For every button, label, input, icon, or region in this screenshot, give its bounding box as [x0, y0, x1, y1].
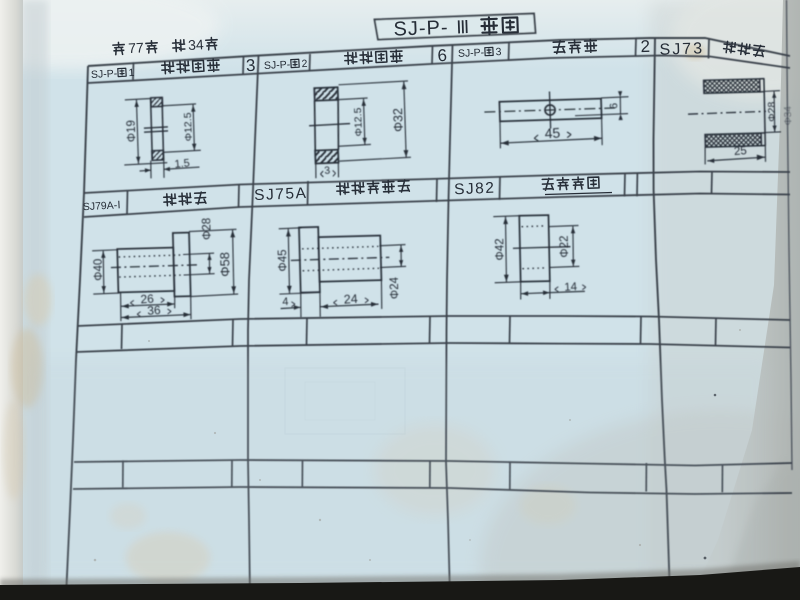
svg-text:SJ73: SJ73 [659, 40, 704, 59]
svg-text:Φ19: Φ19 [126, 120, 139, 142]
svg-text:Φ42: Φ42 [494, 238, 506, 260]
svg-text:36: 36 [147, 303, 162, 318]
svg-text:14: 14 [564, 281, 578, 294]
svg-text:Φ12.5: Φ12.5 [182, 112, 195, 141]
svg-text:SJ82: SJ82 [454, 180, 496, 199]
svg-text:6: 6 [437, 46, 447, 65]
svg-text:34: 34 [188, 36, 205, 53]
svg-text:Φ24: Φ24 [389, 276, 402, 299]
svg-text:Φ32: Φ32 [391, 108, 406, 132]
svg-text:Φ12.5: Φ12.5 [352, 107, 365, 136]
svg-text:SJ-P-: SJ-P- [91, 68, 118, 81]
svg-text:SJ79A-: SJ79A- [82, 199, 118, 213]
svg-text:SJ-P-: SJ-P- [393, 17, 449, 41]
svg-text:I: I [117, 199, 121, 211]
svg-text:Φ40: Φ40 [92, 259, 105, 281]
svg-text:1.5: 1.5 [174, 157, 190, 170]
svg-text:SJ75A: SJ75A [254, 185, 308, 204]
svg-text:45: 45 [544, 124, 561, 141]
svg-text:Φ34: Φ34 [783, 106, 795, 126]
svg-text:3: 3 [495, 46, 502, 58]
svg-text:III: III [456, 17, 468, 38]
svg-text:Φ45: Φ45 [277, 249, 290, 271]
svg-text:2: 2 [301, 58, 308, 70]
svg-text:3: 3 [245, 56, 255, 75]
svg-text:Φ28: Φ28 [201, 218, 214, 240]
svg-text:25: 25 [734, 145, 748, 158]
svg-text:SJ-P-: SJ-P- [458, 47, 485, 60]
svg-text:24: 24 [343, 292, 358, 307]
svg-text:SJ-P-: SJ-P- [264, 59, 291, 72]
svg-text:Φ22: Φ22 [559, 235, 571, 257]
svg-text:Φ58: Φ58 [217, 252, 233, 277]
svg-text:6: 6 [608, 103, 620, 109]
svg-text:77: 77 [128, 39, 145, 56]
svg-text:2: 2 [640, 37, 650, 56]
svg-text:1: 1 [128, 67, 135, 79]
svg-text:Φ28: Φ28 [766, 101, 779, 122]
svg-text:4: 4 [282, 296, 289, 308]
